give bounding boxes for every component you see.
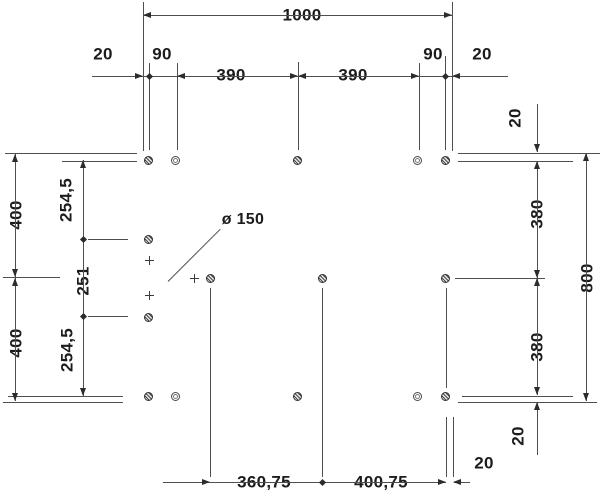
dim-label-top-90-right: 90 <box>423 46 443 63</box>
mounting-hole-open <box>171 156 180 165</box>
dimension-or-extension-line <box>458 153 600 154</box>
dimension-or-extension-line <box>88 239 128 240</box>
dimension-or-extension-line <box>446 288 447 388</box>
mounting-hole <box>318 274 327 283</box>
mounting-hole-open <box>171 392 180 401</box>
mounting-hole <box>441 274 450 283</box>
center-mark <box>149 291 150 300</box>
mounting-hole <box>206 274 215 283</box>
dimension-or-extension-line <box>455 278 545 279</box>
mounting-hole <box>293 392 302 401</box>
dimension-or-extension-line <box>462 396 573 397</box>
dimension-or-extension-line <box>322 288 323 477</box>
dimension-arrowhead <box>444 12 452 18</box>
mounting-hole <box>144 235 153 244</box>
technical-drawing: 1000 20 90 390 390 90 20 20 380 380 800 … <box>0 0 600 497</box>
dimension-or-extension-line <box>83 160 84 396</box>
dim-label-left-400-top: 400 <box>8 197 25 232</box>
dim-label-top-390-left: 390 <box>213 67 248 84</box>
mounting-hole-open <box>413 392 422 401</box>
dimension-arrowhead <box>298 73 306 79</box>
dim-label-left-254-bottom: 254,5 <box>59 328 76 372</box>
dimension-arrowhead <box>411 73 419 79</box>
dimension-or-extension-line <box>458 161 573 162</box>
dimension-arrowhead <box>80 160 86 168</box>
dimension-arrowhead <box>534 402 540 410</box>
dimension-arrowhead <box>534 161 540 169</box>
dimension-arrowhead <box>290 73 298 79</box>
dimension-or-extension-line <box>143 15 452 16</box>
dim-label-right-offset-bottom: 20 <box>510 426 527 446</box>
dimension-arrowhead <box>12 278 18 286</box>
dimension-arrowhead <box>202 479 210 485</box>
dimension-or-extension-line <box>419 63 420 150</box>
mounting-hole <box>441 392 450 401</box>
chain-tick-diamond <box>145 72 152 79</box>
dim-label-total-height: 800 <box>579 260 596 295</box>
dimension-or-extension-line <box>458 402 597 403</box>
dimension-or-extension-line <box>3 402 123 403</box>
dimension-arrowhead <box>135 73 143 79</box>
dim-label-bottom-20: 20 <box>474 455 494 472</box>
mounting-hole <box>441 156 450 165</box>
chain-tick-diamond <box>318 478 325 485</box>
mounting-hole-open <box>413 156 422 165</box>
dim-label-left-400-bottom: 400 <box>8 325 25 360</box>
dimension-or-extension-line <box>143 2 144 151</box>
dimension-or-extension-line <box>210 288 211 477</box>
dimension-arrowhead <box>452 73 460 79</box>
dimension-arrowhead <box>583 153 589 161</box>
center-mark <box>149 256 150 265</box>
dim-label-right-offset-top: 20 <box>507 108 524 128</box>
mounting-hole <box>293 156 302 165</box>
mounting-hole <box>144 156 153 165</box>
center-mark <box>194 274 195 283</box>
mounting-hole <box>144 313 153 322</box>
dimension-arrowhead <box>534 144 540 152</box>
dim-label-top-20-left: 20 <box>93 46 113 63</box>
dimension-or-extension-line <box>586 153 587 401</box>
dimension-or-extension-line <box>62 161 137 162</box>
dimension-arrowhead <box>534 278 540 286</box>
dimension-arrowhead <box>534 270 540 278</box>
dimension-arrowhead <box>453 479 461 485</box>
dimension-or-extension-line <box>453 417 454 477</box>
dimension-or-extension-line <box>88 316 128 317</box>
dim-label-top-390-right: 390 <box>335 67 370 84</box>
dim-label-left-254-top: 254,5 <box>58 178 75 222</box>
dimension-arrowhead <box>12 393 18 401</box>
dimension-or-extension-line <box>5 153 137 154</box>
dimension-arrowhead <box>80 388 86 396</box>
dimension-arrowhead <box>438 479 446 485</box>
dimension-or-extension-line <box>445 56 446 150</box>
dimension-or-extension-line <box>8 396 123 397</box>
dimension-arrowhead <box>177 73 185 79</box>
dim-label-top-90-left: 90 <box>152 46 172 63</box>
dimension-arrowhead <box>143 12 151 18</box>
drain-diameter-label: ø 150 <box>222 212 264 228</box>
dimension-arrowhead <box>583 393 589 401</box>
mounting-hole <box>144 392 153 401</box>
dimension-arrowhead <box>12 154 18 162</box>
dimension-arrowhead <box>534 387 540 395</box>
chain-tick-diamond <box>79 312 86 319</box>
dim-label-top-20-right: 20 <box>472 46 492 63</box>
dimension-or-extension-line <box>446 417 447 477</box>
chain-tick-diamond <box>441 72 448 79</box>
dimension-arrowhead <box>12 269 18 277</box>
chain-tick-diamond <box>79 235 86 242</box>
